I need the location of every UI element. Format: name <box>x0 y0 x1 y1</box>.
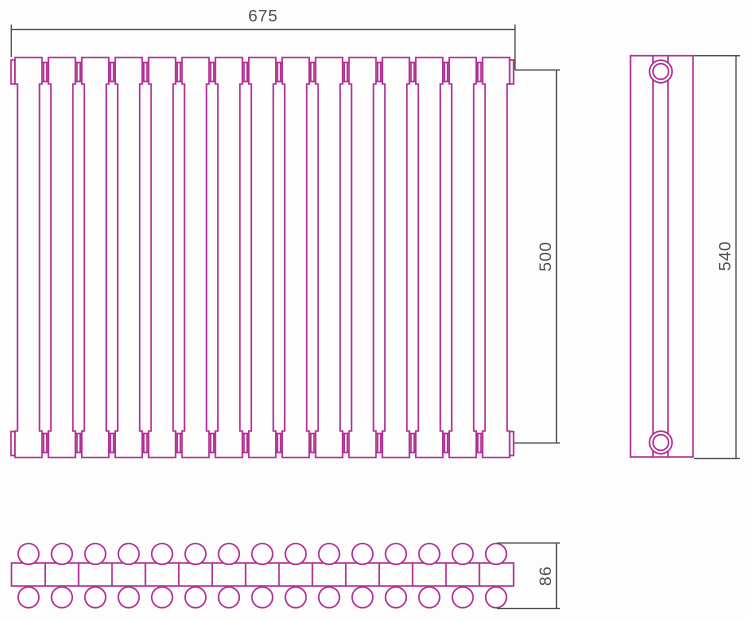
radiator-tube <box>449 58 476 458</box>
dim-conn-label: 500 <box>536 242 555 272</box>
tube-section-circle-back <box>118 544 139 565</box>
tube-section-circle-front <box>185 587 206 608</box>
radiator-tube <box>82 58 109 458</box>
section-view <box>12 544 514 608</box>
tube-section-circle-front <box>152 587 173 608</box>
tube-section-circle-front <box>118 587 139 608</box>
front-view <box>11 58 514 458</box>
radiator-tube <box>282 58 309 458</box>
tube-section-circle-front <box>219 587 240 608</box>
drawing-canvas: 675 500 540 86 <box>0 0 750 621</box>
dim-depth-label: 86 <box>536 566 555 586</box>
radiator-tube <box>249 58 276 458</box>
tube-section-circle-back <box>352 544 373 565</box>
tube-section-circle-back <box>285 544 306 565</box>
collector-band <box>12 563 514 586</box>
radiator-tube <box>483 58 510 458</box>
tube-section-circle-back <box>486 544 507 565</box>
dimension-total-height: 540 <box>694 56 740 459</box>
radiator-tube <box>182 58 209 458</box>
radiator-drawing: 675 500 540 86 <box>0 0 750 621</box>
tube-section-circle-back <box>319 544 340 565</box>
radiator-tube <box>349 58 376 458</box>
radiator-tube <box>215 58 242 458</box>
radiator-tube <box>15 58 42 458</box>
radiator-tube <box>149 58 176 458</box>
dim-height-label: 540 <box>716 241 735 271</box>
tube-section-circle-front <box>319 587 340 608</box>
side-view <box>631 56 694 457</box>
radiator-tube <box>316 58 343 458</box>
tube-section-circle-back <box>252 544 273 565</box>
radiator-tube <box>115 58 142 458</box>
tube-section-circle-front <box>252 587 273 608</box>
tube-section-circle-back <box>85 544 106 565</box>
tube-section-circle-back <box>18 544 39 565</box>
tube-section-circle-back <box>152 544 173 565</box>
radiator-tube <box>416 58 443 458</box>
tube-section-circle-front <box>18 587 39 608</box>
tube-section-circle-back <box>185 544 206 565</box>
tube-section-circle-front <box>352 587 373 608</box>
tube-section-circle-front <box>419 587 440 608</box>
radiator-tube <box>382 58 409 458</box>
tube-section-circle-front <box>452 587 473 608</box>
tube-section-circle-back <box>52 544 73 565</box>
dim-width-label: 675 <box>248 7 278 26</box>
dimension-connection-height: 500 <box>514 70 560 443</box>
tube-section-circle-front <box>85 587 106 608</box>
tube-section-circle-back <box>386 544 407 565</box>
tube-section-circle-back <box>219 544 240 565</box>
tube-section-circle-front <box>285 587 306 608</box>
tube-section-circle-front <box>52 587 73 608</box>
tube-section-circle-back <box>419 544 440 565</box>
tube-section-circle-back <box>452 544 473 565</box>
side-profile <box>631 56 694 457</box>
tube-section-circle-front <box>486 587 507 608</box>
radiator-tube <box>48 58 75 458</box>
tube-section-circle-front <box>386 587 407 608</box>
